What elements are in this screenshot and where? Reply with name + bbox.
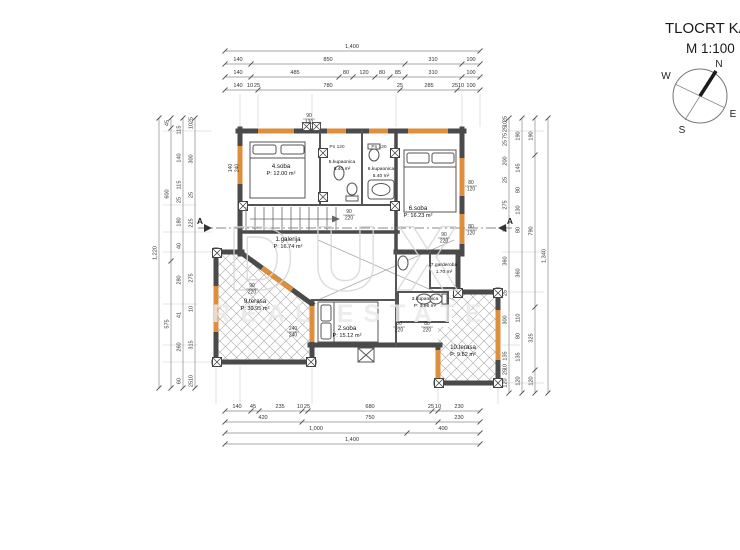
dim-text: 25 <box>503 226 509 232</box>
opening-size-tag: 220 <box>423 328 432 334</box>
dim-text: 275 <box>503 200 509 209</box>
compass-south-label: S <box>679 125 686 136</box>
dim-text: 60 <box>177 378 183 384</box>
bed-icon <box>404 150 456 212</box>
dim-text: 80 <box>379 70 385 76</box>
dim-text: 25 <box>189 117 195 123</box>
dim-text: 360 <box>503 256 509 265</box>
annotation-text: Pn 120 <box>329 144 345 150</box>
room-name: 6.soba <box>409 205 428 212</box>
sheet-title: TLOCRT KATA <box>665 20 740 37</box>
dim-text: 300 <box>503 315 509 324</box>
compass-axis-tail <box>685 96 700 120</box>
opening-size-tag: 80 <box>468 180 474 186</box>
dim-text: 115 <box>177 181 183 190</box>
dim-text: 680 <box>365 404 374 410</box>
dim-text: 25 <box>503 369 509 375</box>
dim-text: 25 <box>503 126 509 132</box>
room-name: 5.kupaonica <box>329 159 356 165</box>
dim-text: 1,000 <box>309 426 323 432</box>
dim-text: 120 <box>503 378 509 387</box>
dim-text: 10 <box>297 404 303 410</box>
dim-text: 25 <box>428 404 434 410</box>
dim-text: 1,340 <box>542 249 548 263</box>
dim-text: 75 <box>503 133 509 139</box>
dim-text: 780 <box>323 83 332 89</box>
room-name: 6.kupaonica <box>368 166 395 172</box>
room-area: P: 16.74 m² <box>274 244 303 250</box>
opening-size-tag: 220 <box>345 216 354 222</box>
opening-size-tag: 120 <box>467 187 476 193</box>
dim-text: 120 <box>516 376 522 385</box>
room-name: 4.soba <box>272 163 291 170</box>
dim-text: 575 <box>165 319 171 328</box>
room-area: P: 30.95 m² <box>241 306 270 312</box>
room-area: P: 9.82 m² <box>450 352 476 358</box>
dim-text: 280 <box>177 275 183 284</box>
opening-size-tag: 80 <box>424 321 430 327</box>
opening-size-tag: 80 <box>396 321 402 327</box>
dim-text: 80 <box>516 187 522 193</box>
dim-text: 100 <box>466 83 475 89</box>
room-area: 5.40 m² <box>373 173 390 179</box>
annotation-text: Pn 120 <box>371 144 387 150</box>
dim-text: 325 <box>529 333 535 342</box>
opening-size-tag: 90 <box>306 113 312 119</box>
opening-size-tag: 90 <box>441 232 447 238</box>
shaft-icon <box>358 348 374 362</box>
floor-plan-drawing: TLOCRT KATA M 1:100 N W S E <box>0 0 740 550</box>
room-area: P: 16.23 m² <box>404 213 433 219</box>
dim-text: 315 <box>189 340 195 349</box>
compass-needle-icon <box>700 71 716 96</box>
room-area: P: 3.96 m² <box>414 303 437 309</box>
dim-text: 10 <box>189 123 195 129</box>
bed-icon <box>250 142 305 198</box>
dim-text: 10 <box>189 375 195 381</box>
dim-text: 135 <box>503 351 509 360</box>
dim-text: 140 <box>233 57 242 63</box>
opening-size-tag: 140 <box>228 164 234 173</box>
dim-text: 25 <box>503 140 509 146</box>
dim-text: 45 <box>165 120 171 126</box>
dim-text: 190 <box>529 131 535 140</box>
dim-text: 40 <box>177 243 183 249</box>
dim-text: 275 <box>189 273 195 282</box>
dim-text: 41 <box>177 312 183 318</box>
bathtub-icon <box>368 180 394 199</box>
dim-text: 25 <box>503 290 509 296</box>
dim-text: 1,400 <box>345 437 359 443</box>
dim-text: 115 <box>177 126 183 135</box>
dim-text: 10 <box>435 404 441 410</box>
opening-size-tag: 240 <box>289 333 298 339</box>
opening-size-tag: 240 <box>235 164 241 173</box>
dim-text: 750 <box>365 415 374 421</box>
room-area: P: 15.12 m² <box>333 333 362 339</box>
opening-size-tag: 220 <box>440 239 449 245</box>
opening-size-tag: 120 <box>305 120 314 126</box>
room-name: 7.garderoba <box>431 262 458 268</box>
opening-size-tag: 220 <box>248 290 257 296</box>
compass-east-label: E <box>730 109 737 120</box>
dim-text: 180 <box>177 217 183 226</box>
annotation-text: A <box>507 216 513 226</box>
section-arrow-icon <box>204 224 212 232</box>
dim-text: 310 <box>428 57 437 63</box>
room-area: 5.40 m² <box>334 166 351 172</box>
dim-text: 25 <box>397 83 403 89</box>
dim-text: 225 <box>189 218 195 227</box>
dim-text: 790 <box>529 226 535 235</box>
dim-text: 145 <box>516 163 522 172</box>
dim-text: 10 <box>247 83 253 89</box>
dim-text: 485 <box>290 70 299 76</box>
dim-text: 200 <box>503 156 509 165</box>
dim-text: 25 <box>189 381 195 387</box>
opening-size-tag: 90 <box>249 283 255 289</box>
room-name: 2.soba <box>338 325 357 332</box>
dim-text: 230 <box>454 404 463 410</box>
opening-size-tag: 80 <box>468 224 474 230</box>
dim-text: 230 <box>454 415 463 421</box>
dim-text: 110 <box>516 314 522 323</box>
dim-text: 285 <box>424 83 433 89</box>
dim-text: 140 <box>233 83 242 89</box>
dim-text: 1,400 <box>345 44 359 50</box>
dim-text: 420 <box>258 415 267 421</box>
dimension-texts-bottom: 14045235102568025102304207502301,0004001… <box>232 404 463 443</box>
dim-text: 135 <box>516 352 522 361</box>
dim-text: 140 <box>232 404 241 410</box>
dim-text: 310 <box>428 70 437 76</box>
dim-text: 10 <box>458 83 464 89</box>
opening-size-tag: 90 <box>346 209 352 215</box>
dim-text: 120 <box>359 70 368 76</box>
room-name: 1.galerija <box>275 236 301 243</box>
room-name: 9.terasa <box>244 298 267 305</box>
opening-size-tag: 220 <box>395 328 404 334</box>
dim-text: 25 <box>177 197 183 203</box>
dim-text: 850 <box>323 57 332 63</box>
opening-size-tag: 240 <box>289 326 298 332</box>
dim-text: 80 <box>516 333 522 339</box>
watermark-primary: DUX <box>228 208 476 310</box>
room-name: 3.kupaonica <box>412 296 439 302</box>
dim-text: 85 <box>395 70 401 76</box>
floor-plan-sheet: TLOCRT KATA M 1:100 N W S E <box>0 0 740 550</box>
dim-text: 100 <box>466 57 475 63</box>
dim-text: 1,220 <box>153 246 159 260</box>
dim-text: 360 <box>516 268 522 277</box>
annotation-text: A <box>197 216 203 226</box>
dim-text: 400 <box>438 426 447 432</box>
dim-text: 100 <box>466 70 475 76</box>
dim-text: 140 <box>233 70 242 76</box>
dim-text: 300 <box>189 154 195 163</box>
opening-size-tag: 120 <box>467 231 476 237</box>
sheet-scale: M 1:100 <box>686 41 735 56</box>
dim-text: 80 <box>516 227 522 233</box>
dim-text: 25 <box>189 192 195 198</box>
compass-north-label: N <box>715 59 722 70</box>
dim-text: 235 <box>275 404 284 410</box>
dim-text: 25 <box>304 404 310 410</box>
dim-text: 80 <box>343 70 349 76</box>
dim-text: 130 <box>516 205 522 214</box>
dim-text: 190 <box>516 131 522 140</box>
room-area: 1.70 m² <box>436 269 453 275</box>
dim-text: 25 <box>503 177 509 183</box>
room-area: P: 12.00 m² <box>267 171 296 177</box>
dim-text: 120 <box>529 376 535 385</box>
room-name: 10.terasa <box>450 344 476 351</box>
dim-text: 45 <box>250 404 256 410</box>
compass-west-label: W <box>661 71 671 82</box>
dim-text: 10 <box>189 306 195 312</box>
dim-text: 140 <box>177 153 183 162</box>
toilet-icon <box>346 183 358 201</box>
compass-rose: N W S E <box>661 59 736 136</box>
dim-text: 260 <box>177 342 183 351</box>
dim-text: 600 <box>165 189 171 198</box>
dim-text: 25 <box>254 83 260 89</box>
